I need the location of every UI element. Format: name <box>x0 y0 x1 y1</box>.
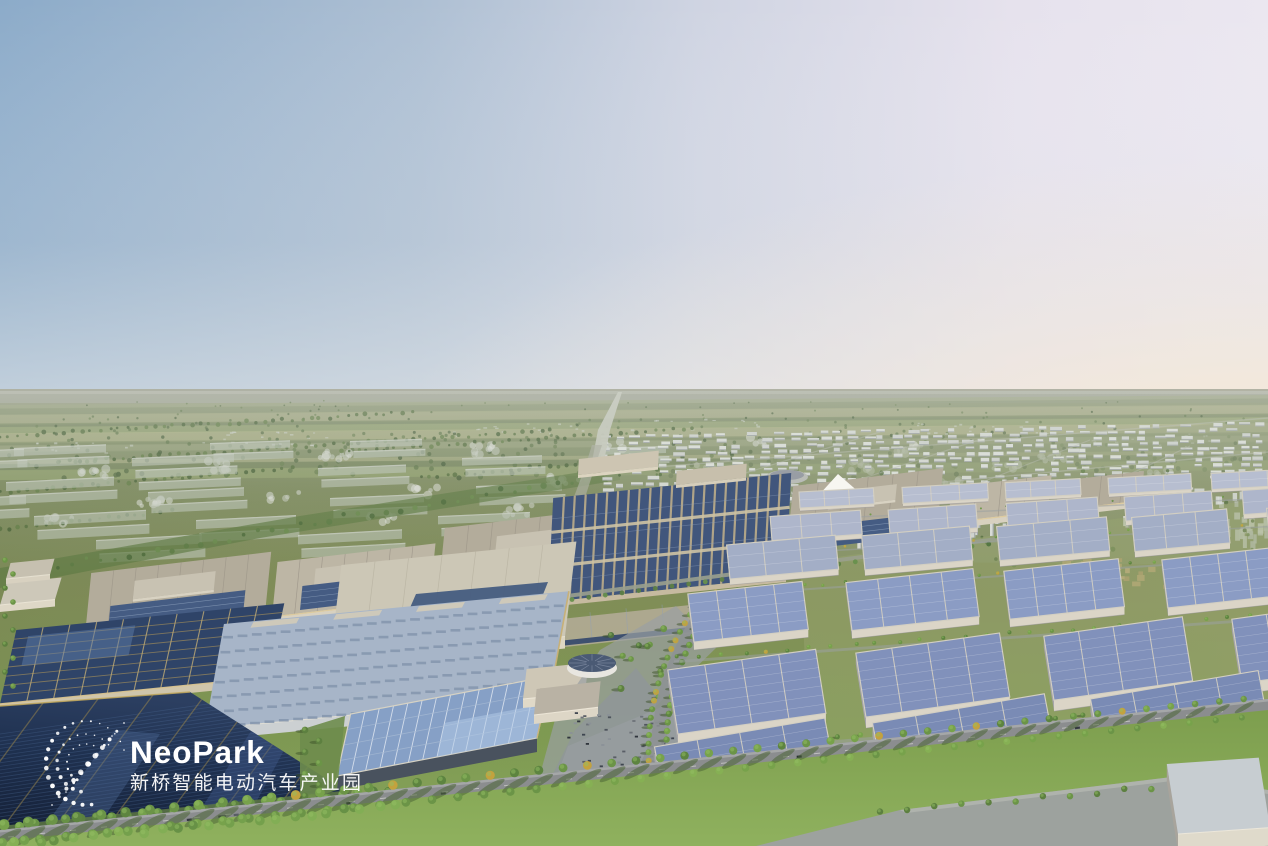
svg-text:新桥智能电动汽车产业园: 新桥智能电动汽车产业园 <box>130 772 363 794</box>
svg-text:NeoPark: NeoPark <box>130 734 265 770</box>
